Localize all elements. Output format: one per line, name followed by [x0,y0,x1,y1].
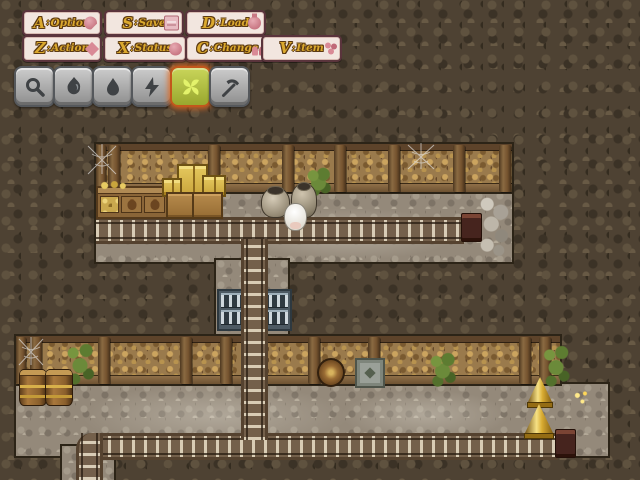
wooden-crate [192,192,223,219]
barrel [45,369,73,406]
search-tool-button[interactable] [14,66,55,107]
load-button[interactable]: D:Load [185,10,266,36]
water-tool-button[interactable] [92,66,133,107]
sheep-npc[interactable] [284,203,307,231]
wrench-icon [84,17,97,30]
ore-display-panel [100,196,119,213]
wall-post [499,145,511,192]
item-key: V [279,41,291,56]
gold-bell-base [524,433,554,439]
wall-post [180,337,192,384]
save-button[interactable]: S:Save [104,10,184,36]
book-icon [164,16,179,31]
gold-bell-cone [527,377,553,404]
wall-plant [427,350,458,388]
load-label: Load [220,18,249,29]
side-barrel [317,358,345,387]
gold-bell [524,404,554,439]
fire-icon [62,75,86,99]
gold-ore-bits [99,181,127,190]
goods-panel [144,196,165,213]
pickaxe-tool-button[interactable] [209,66,250,107]
track-bumper [461,213,482,242]
gold-bell-cone [524,404,554,435]
spiderweb [17,337,45,367]
game-screen: A:Option S:Save D:Load Z:Action X:Status… [0,0,640,480]
save-key: S [122,16,133,31]
status-button[interactable]: X:Status [103,35,187,62]
ladder-track [241,239,268,440]
pickaxe-icon [218,75,242,99]
change-button[interactable]: C:Change [185,35,270,62]
wall-post [98,337,110,384]
ore-sparkle [572,389,590,405]
change-key: C [197,41,209,56]
wall-post [334,145,346,192]
action-button[interactable]: Z:Action [22,35,102,62]
goods-counter [96,186,170,219]
wind-tool-button[interactable] [170,66,211,107]
wall-post [388,145,400,192]
wall-post [282,145,294,192]
option-key: A [34,16,46,31]
flower-icon [324,42,337,55]
status-key: X [118,41,130,56]
rock-rubble [477,191,511,257]
orb-icon [169,42,182,55]
status-label: Status [135,43,173,54]
item-label: Item [296,43,324,54]
barrel [19,369,47,406]
wall-post [220,337,232,384]
spiderweb [86,144,118,176]
fire-tool-button[interactable] [53,66,94,107]
pinwheel-icon [179,75,203,99]
track-curve [76,433,103,480]
load-key: D [202,16,215,31]
goods-panel [121,196,142,213]
lower-mine-track [96,433,558,460]
save-label: Save [139,18,166,29]
option-button[interactable]: A:Option [22,10,102,36]
wall-post [453,145,465,192]
lightning-tool-button[interactable] [131,66,172,107]
water-drop-icon [101,75,125,99]
item-button[interactable]: V:Item [261,35,342,62]
spiderweb [406,143,436,171]
lightning-icon [140,75,164,99]
flask-icon [248,17,261,30]
track-bumper [555,429,576,458]
supply-crate [355,358,385,388]
search-icon [23,75,47,99]
upper-mine-track [96,217,464,244]
action-key: Z [35,41,46,56]
